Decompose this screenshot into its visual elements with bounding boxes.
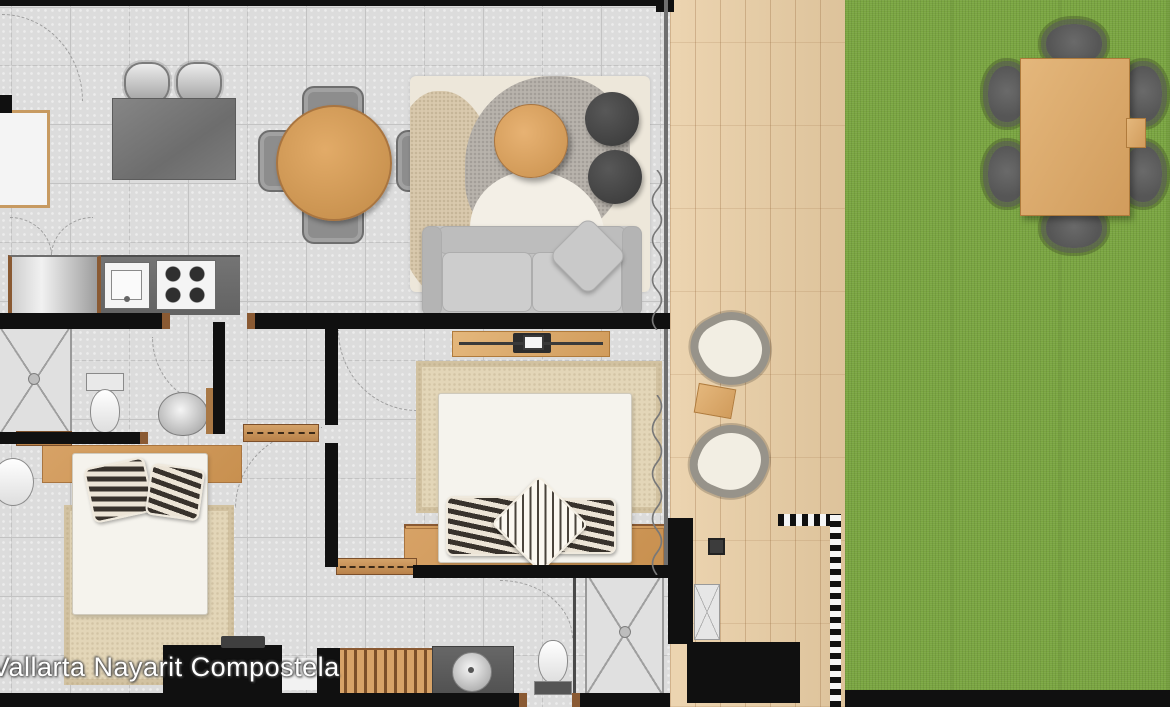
- wall-stub-left: [0, 95, 12, 113]
- watermark-text: Vallarta Nayarit Compostela: [0, 652, 340, 683]
- curtain-symbol: [650, 395, 664, 575]
- door-jamb: [247, 313, 255, 329]
- kitchen-sink: [104, 262, 150, 309]
- sliding-door: [336, 558, 417, 575]
- curtain-symbol: [650, 170, 664, 330]
- toilet: [90, 389, 120, 433]
- sofa-cushion: [442, 252, 532, 312]
- wall-hall-lower: [325, 443, 338, 567]
- deck-drain: [708, 538, 725, 555]
- wall-mid-right: [247, 313, 670, 329]
- wall-mid-left: [0, 313, 170, 329]
- door-jamb: [572, 693, 580, 707]
- deck-side-table: [694, 383, 737, 419]
- wardrobe: [332, 648, 434, 698]
- door-jamb: [140, 432, 148, 444]
- refrigerator: [8, 255, 101, 317]
- door-jamb: [162, 313, 170, 329]
- wall-bottom-right: [580, 693, 670, 707]
- bath-divider: [573, 575, 576, 693]
- striped-pillow: [145, 462, 206, 521]
- round-dining-table: [276, 105, 392, 221]
- tv-on-wall: [221, 636, 265, 648]
- wall-bottom-left: [0, 693, 527, 707]
- shower-drain: [619, 626, 631, 638]
- hatched-boundary-vertical: [830, 514, 841, 707]
- toilet: [538, 640, 568, 684]
- sofa: [422, 226, 640, 314]
- door-jamb: [519, 693, 527, 707]
- entry-cabinet: [0, 110, 50, 208]
- wall-deck-vertical: [668, 518, 693, 644]
- washbasin: [158, 392, 208, 436]
- shower: [0, 325, 72, 436]
- wall-lawn-bottom: [845, 690, 1170, 707]
- floor-plan: Vallarta Nayarit Compostela: [0, 0, 1170, 707]
- sink-drain: [468, 667, 474, 673]
- sink-faucet: [124, 296, 130, 302]
- round-coffee-table: [494, 104, 568, 178]
- shower-drain: [28, 373, 40, 385]
- sliding-door: [243, 424, 319, 442]
- tv-screen: [523, 335, 544, 350]
- equipment-pad: [694, 584, 720, 640]
- ottoman-pouf: [588, 150, 642, 204]
- sofa-armrest: [422, 226, 442, 316]
- wall-bath-right: [213, 322, 225, 434]
- gas-stove: [156, 260, 216, 310]
- glass-wall: [664, 0, 668, 565]
- wall-bedroom2-bottom: [413, 565, 670, 578]
- wall-deck-horizontal: [687, 642, 800, 703]
- toilet-tank: [534, 681, 572, 695]
- wall-hall-upper: [325, 329, 338, 425]
- tv-console: [452, 331, 610, 357]
- kitchen-island: [112, 98, 236, 180]
- outdoor-table-extension: [1126, 118, 1146, 148]
- hatched-boundary-horizontal: [778, 514, 838, 526]
- outdoor-dining-table: [1020, 58, 1130, 216]
- sofa-armrest: [622, 226, 642, 316]
- wall-top: [0, 0, 670, 6]
- ottoman-pouf: [585, 92, 639, 146]
- round-sink: [452, 652, 492, 692]
- shower: [585, 572, 664, 696]
- wall-bath-bottom: [0, 432, 148, 444]
